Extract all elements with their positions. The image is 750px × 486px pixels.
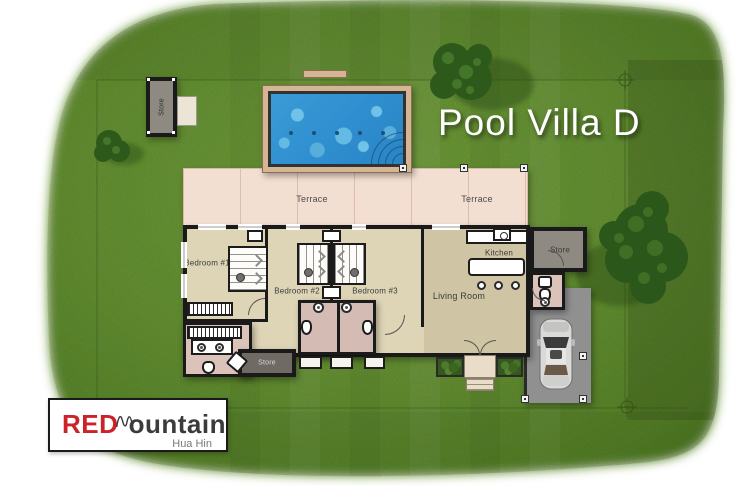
outbuilding-store-label: Store	[158, 98, 165, 116]
stool-icon	[494, 281, 503, 290]
store-bottom-room: Store	[238, 349, 296, 377]
wall-corner-dot	[147, 78, 150, 81]
vanity-icon	[191, 339, 233, 355]
wall-corner-dot	[147, 131, 150, 134]
window-icon	[286, 224, 300, 230]
ensuite-divider-wall	[337, 303, 340, 352]
nightstand-icon	[322, 286, 341, 299]
toilet-icon	[362, 320, 373, 335]
pool-lane-dot	[312, 131, 316, 135]
ac-unit-icon	[364, 356, 385, 369]
kitchen-label: Kitchen	[485, 249, 513, 258]
bedroom1-label: Bedroom #1	[184, 259, 230, 268]
stool-icon	[511, 281, 520, 290]
car-icon	[537, 317, 575, 391]
store-right-label: Store	[550, 246, 570, 255]
column-marker-icon	[521, 395, 529, 403]
pool-water	[271, 94, 403, 164]
pillow-icon	[250, 254, 263, 267]
column-marker-icon	[579, 395, 587, 403]
bed-icon	[333, 243, 366, 285]
logo-mountain-text: ountain	[129, 411, 226, 437]
window-icon	[238, 224, 262, 230]
sink-icon	[215, 343, 224, 352]
nightstand-icon	[322, 230, 341, 242]
ac-unit-icon	[299, 356, 322, 369]
pool-lane-dot	[289, 131, 293, 135]
window-icon	[198, 224, 226, 230]
tree-icon	[430, 43, 492, 100]
store-bottom-label: Store	[258, 360, 276, 367]
bedroom2-label: Bedroom #2	[274, 287, 320, 296]
red-mountain-logo: RED ountain Hua Hin	[48, 398, 228, 452]
pool-lane-dot	[381, 131, 385, 135]
fridge-glyph	[500, 232, 508, 240]
outbuilding-step	[177, 96, 197, 126]
bed-icon	[297, 243, 330, 285]
sink-icon	[341, 302, 352, 313]
toilet-icon	[538, 276, 552, 288]
pillow-icon	[250, 272, 263, 285]
logo-location-text: Hua Hin	[50, 438, 226, 450]
wardrobe-icon	[187, 302, 233, 316]
ac-unit-icon	[330, 356, 353, 369]
lamp-icon	[236, 273, 245, 282]
page-title: Pool Villa D	[438, 102, 641, 144]
pool-lane-dot	[335, 131, 339, 135]
pillow-icon	[337, 250, 350, 263]
logo-red-text: RED	[62, 411, 118, 437]
wall-bed1-bottom	[183, 319, 268, 322]
column-marker-icon	[399, 164, 407, 172]
window-icon	[432, 224, 460, 230]
sink-icon	[313, 302, 324, 313]
pool-deck	[262, 85, 412, 173]
wall-bed3-living	[421, 227, 424, 327]
terrace-left-label: Terrace	[296, 194, 327, 204]
pillow-icon	[313, 265, 326, 278]
pool-lane-dot	[358, 131, 362, 135]
pool-bench	[303, 70, 347, 78]
pool-steps-icon	[371, 132, 403, 164]
column-marker-icon	[460, 164, 468, 172]
stool-icon	[477, 281, 486, 290]
pillow-icon	[337, 265, 350, 278]
pool-villa-d-plan: Terrace Terrace Store	[0, 0, 750, 486]
terrace-right-label: Terrace	[461, 194, 492, 204]
entrance-path	[464, 355, 496, 378]
fridge-icon	[493, 228, 511, 241]
nightstand-icon	[247, 230, 263, 242]
lamp-icon	[350, 268, 359, 277]
sink-icon	[197, 343, 206, 352]
wall-corner-dot	[172, 78, 175, 81]
window-icon	[181, 274, 187, 298]
planter-icon	[436, 357, 464, 377]
column-marker-icon	[579, 352, 587, 360]
kitchen-island	[468, 258, 525, 276]
bedroom3-label: Bedroom #3	[352, 287, 398, 296]
bed-icon	[228, 246, 268, 292]
entrance-steps	[466, 378, 494, 391]
window-icon	[352, 224, 366, 230]
pool-frame	[268, 91, 406, 167]
lamp-icon	[304, 268, 313, 277]
outbuilding-store: Store	[146, 77, 177, 137]
living-room-label: Living Room	[433, 291, 485, 301]
toilet-icon	[202, 361, 215, 374]
wall-corner-dot	[172, 131, 175, 134]
wardrobe-icon	[187, 326, 242, 339]
column-marker-icon	[520, 164, 528, 172]
planter-icon	[496, 357, 523, 377]
toilet-icon	[301, 320, 312, 335]
window-icon	[181, 242, 187, 268]
pillow-icon	[313, 250, 326, 263]
